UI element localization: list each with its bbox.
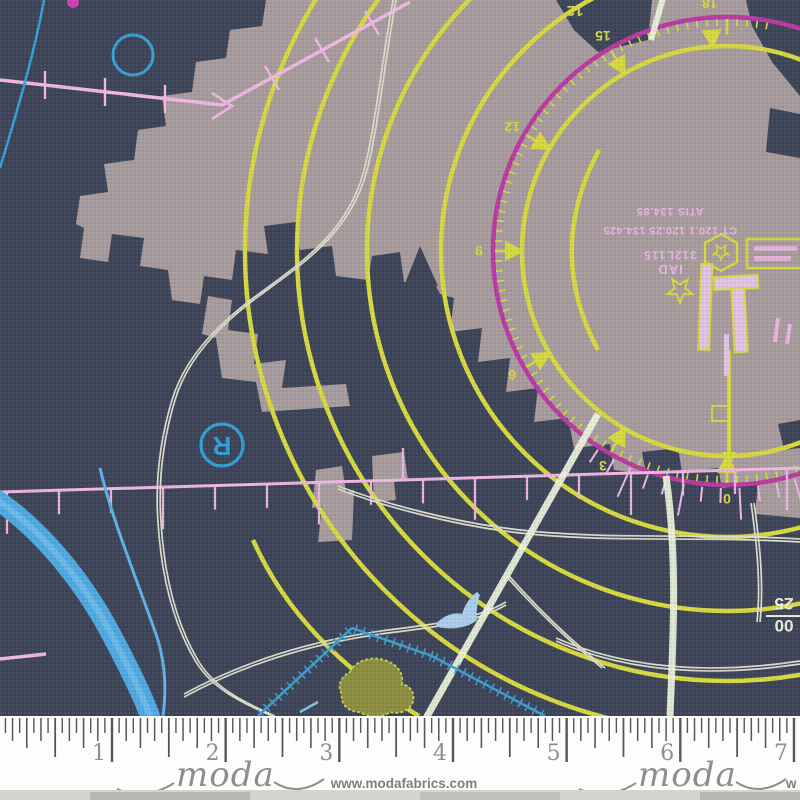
moda-wordmark: moda [638, 755, 737, 795]
svg-text:5: 5 [547, 741, 561, 766]
fabric-swatch-photo: 1815129630 [0, 0, 800, 800]
svg-text:4: 4 [433, 741, 447, 766]
moda-wordmark: moda [176, 755, 275, 795]
ruler: 1234567 moda www.modafabrics.com moda w [0, 716, 800, 800]
fabric-scene: 1815129630 [0, 0, 800, 800]
svg-text:1: 1 [92, 741, 106, 766]
svg-text:3: 3 [319, 741, 333, 766]
edge-shadow-2 [420, 792, 560, 800]
svg-text:7: 7 [774, 741, 788, 766]
edge-shadow-1 [90, 792, 250, 800]
fabric-texture [0, 0, 800, 716]
website-url-partial: w [785, 776, 797, 791]
chart-print: 1815129630 [0, 0, 800, 733]
website-url: www.modafabrics.com [330, 776, 478, 791]
edge-shadow-3 [700, 792, 800, 800]
